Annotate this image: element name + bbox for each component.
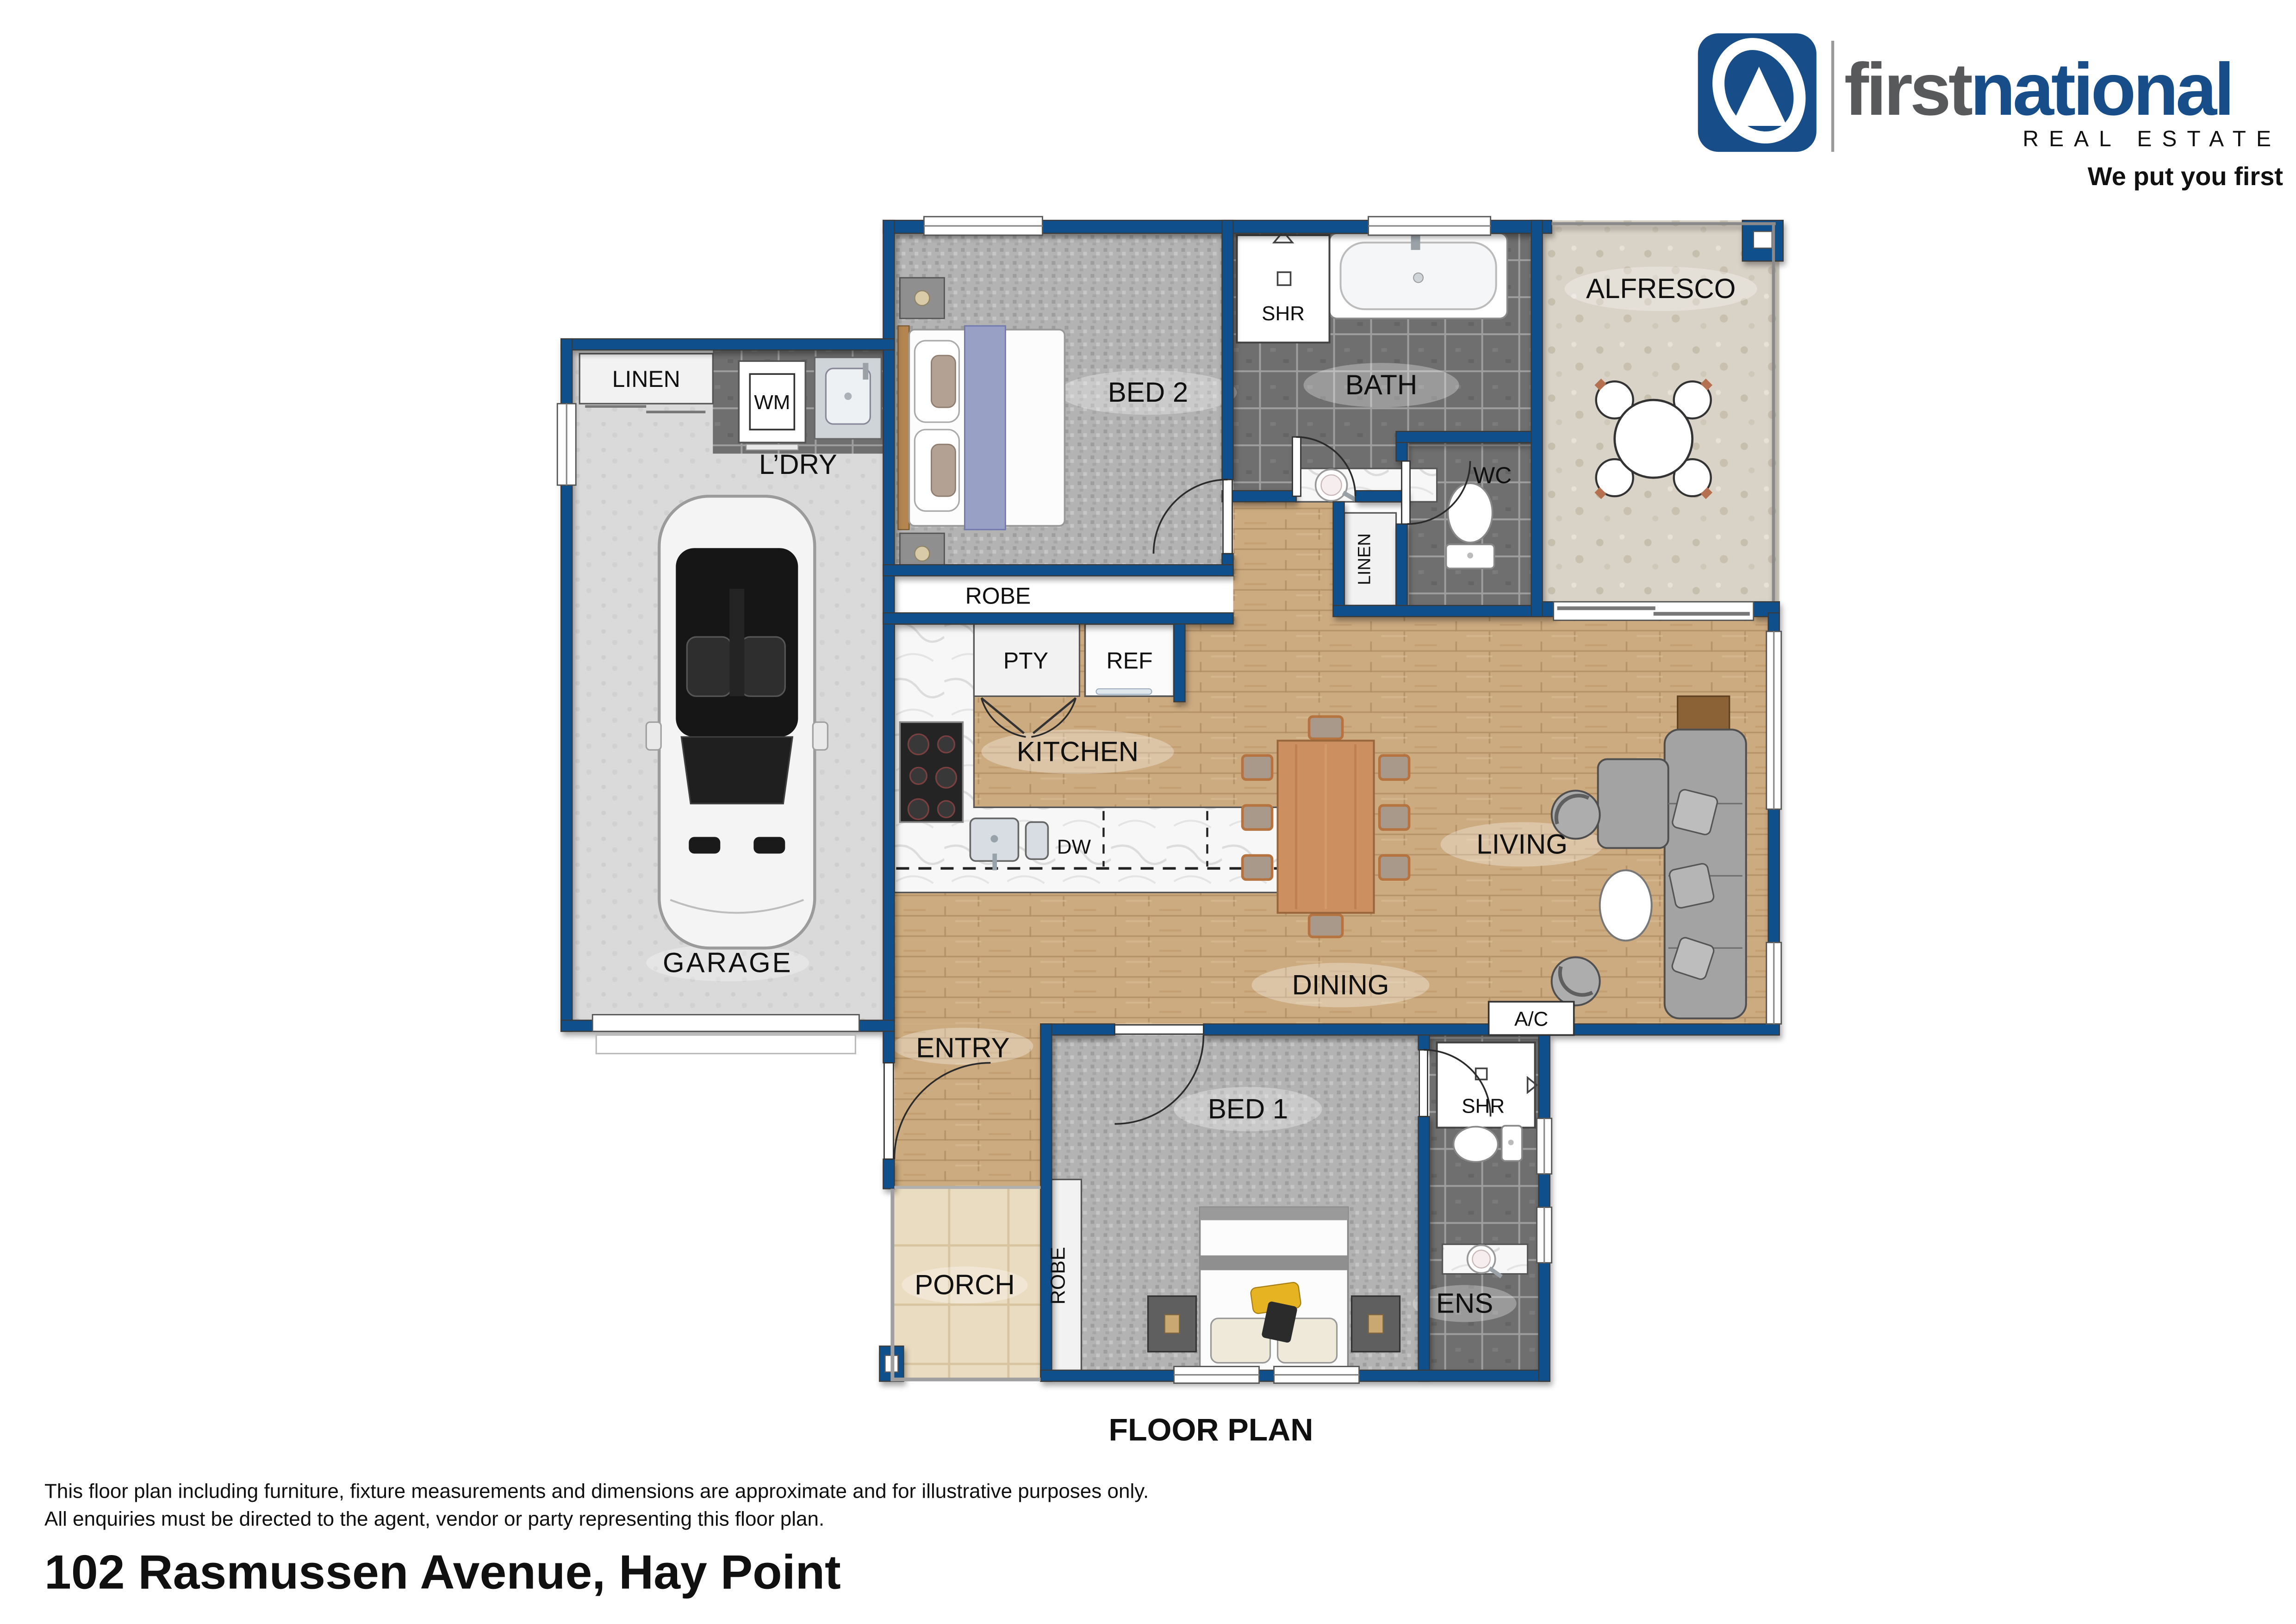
label-kitchen: KITCHEN: [1017, 736, 1139, 767]
ac-label: A/C: [1514, 1008, 1548, 1030]
ens-vanity: [1443, 1244, 1528, 1279]
label-robe-bed2: ROBE: [965, 583, 1031, 609]
label-living: LIVING: [1476, 828, 1568, 859]
label-dining: DINING: [1292, 969, 1389, 1000]
floor-plan-page: firstnational REAL ESTATE We put you fir…: [0, 0, 2296, 1624]
label-bed2: BED 2: [1108, 377, 1188, 408]
address: 102 Rasmussen Avenue, Hay Point: [44, 1546, 841, 1599]
car: [646, 496, 828, 948]
cooktop: [900, 722, 963, 822]
label-ens: ENS: [1436, 1288, 1493, 1319]
label-garage: GARAGE: [663, 947, 793, 978]
porch-step-line: [894, 1186, 1040, 1189]
ens-toilet: [1454, 1126, 1522, 1162]
ac-unit: A/C: [1489, 1002, 1574, 1035]
ens-window-1: [1537, 1118, 1552, 1174]
label-shr-bath: SHR: [1262, 302, 1305, 325]
coffee-table: [1600, 870, 1652, 940]
garage-side-window: [557, 404, 576, 485]
bed1-window-1: [1174, 1367, 1259, 1383]
hall-floor: [1233, 502, 1333, 624]
label-linen-hall: LINEN: [1355, 533, 1375, 585]
bathtub: [1330, 233, 1507, 318]
label-ref: REF: [1106, 647, 1152, 673]
living-window-2: [1767, 942, 1781, 1024]
label-alfresco: ALFRESCO: [1586, 273, 1736, 304]
label-dw: DW: [1057, 835, 1091, 858]
ens-window-2: [1537, 1207, 1552, 1263]
brand-logo: firstnational REAL ESTATE We put you fir…: [1698, 31, 2283, 191]
laundry-sink: [815, 357, 881, 439]
bed1-window-2: [1274, 1367, 1359, 1383]
plan-title: FLOOR PLAN: [1109, 1412, 1313, 1448]
wc-toilet: [1446, 483, 1494, 568]
label-bath: BATH: [1345, 369, 1418, 400]
living-window-1: [1767, 631, 1781, 809]
brand-tagline: We put you first: [2088, 162, 2283, 191]
brand-divider: [1831, 41, 1834, 152]
porch-edge-left: [890, 1189, 894, 1381]
disclaimer-line-2: All enquiries must be directed to the ag…: [44, 1508, 824, 1531]
label-shr-ens: SHR: [1462, 1095, 1505, 1117]
garage-door: [592, 1014, 859, 1053]
porch-edge-bottom: [890, 1378, 1040, 1381]
side-table: [1678, 696, 1730, 733]
label-linen-garage: LINEN: [612, 366, 680, 392]
shower-bath: [1237, 231, 1330, 342]
bed2-window: [924, 217, 1042, 235]
label-porch: PORCH: [915, 1269, 1015, 1300]
alfresco-sliding-door: [1554, 602, 1754, 620]
label-wc: WC: [1473, 462, 1512, 488]
disclaimer-line-1: This floor plan including furniture, fix…: [44, 1480, 1149, 1503]
bath-window: [1369, 217, 1491, 235]
label-wm: WM: [754, 391, 790, 414]
label-robe-bed1: ROBE: [1046, 1247, 1069, 1305]
brand-subtext: REAL ESTATE: [2022, 127, 2281, 151]
label-ldry: L’DRY: [759, 449, 837, 480]
label-entry: ENTRY: [916, 1032, 1009, 1063]
brand-wordmark: firstnational: [1844, 48, 2232, 131]
label-pty: PTY: [1003, 647, 1048, 673]
label-bed1: BED 1: [1208, 1093, 1288, 1124]
